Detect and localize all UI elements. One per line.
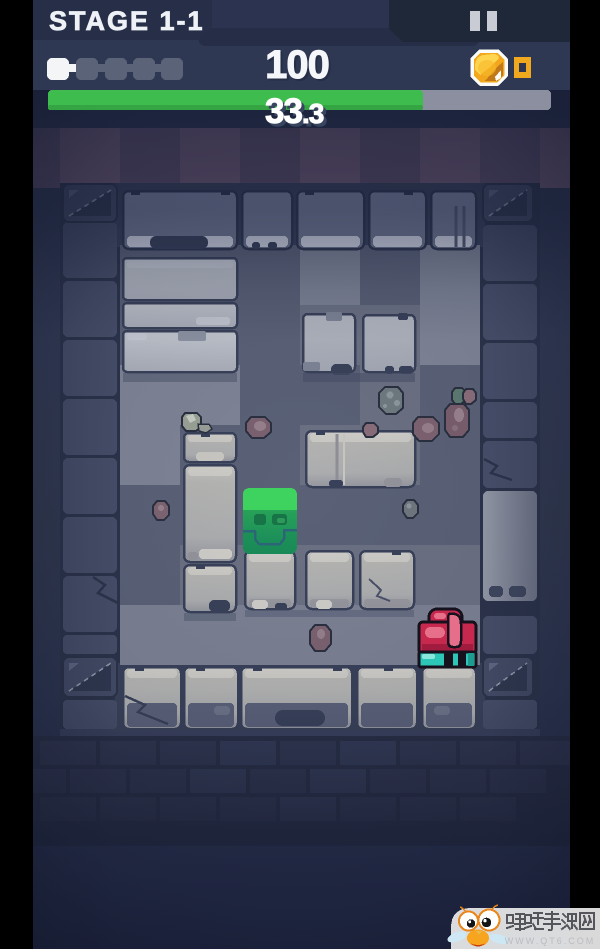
svg-text:WWW.QT6.COM: WWW.QT6.COM <box>505 936 596 946</box>
svg-text:100: 100 <box>265 43 329 87</box>
svg-text:33.3: 33.3 <box>265 92 324 131</box>
svg-text:STAGE 1-1: STAGE 1-1 <box>49 6 205 36</box>
